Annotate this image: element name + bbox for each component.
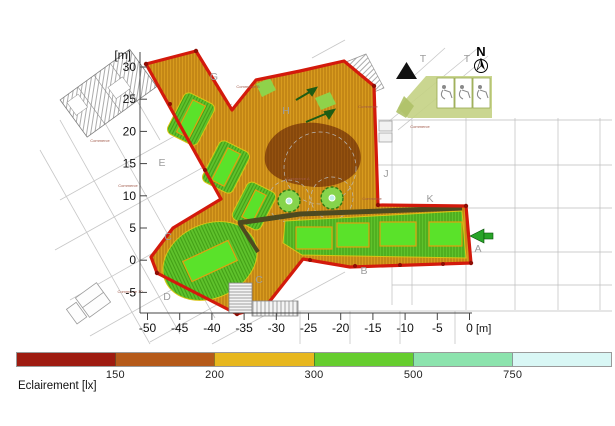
parking-stalls <box>437 78 490 108</box>
illuminance-legend-bar <box>16 352 612 367</box>
commerce-annotation: Commerce <box>410 124 430 129</box>
legend-band <box>413 353 512 366</box>
y-tick-label: 5 <box>129 221 136 235</box>
north-arrow: N <box>475 44 488 73</box>
y-tick-label: 20 <box>123 124 137 138</box>
grid-letter: A <box>474 243 481 255</box>
x-tick-label: -50 <box>139 321 157 335</box>
grid-letter: C <box>255 274 263 286</box>
y-tick-label: -5 <box>125 285 136 299</box>
plan-svg: N GHECCDBAKJTT CommerceCommerceCommerce … <box>0 0 615 348</box>
grid-letter: T <box>420 53 427 65</box>
y-tick-label: 15 <box>123 157 137 171</box>
x-tick-label: -20 <box>332 321 350 335</box>
grid-letter: E <box>158 157 165 169</box>
x-tick-label: -15 <box>364 321 382 335</box>
legend-boundary-value: 750 <box>503 369 522 381</box>
grid-letter: K <box>426 193 433 205</box>
grid-letter: D <box>163 291 171 303</box>
grid-letter: B <box>360 265 367 277</box>
grid-letter: C <box>164 231 172 243</box>
x-tick-label: -10 <box>396 321 414 335</box>
y-tick-label: 10 <box>123 189 137 203</box>
y-tick-label: 0 <box>129 253 136 267</box>
legend-band <box>17 353 115 366</box>
commerce-annotation: Commerce B <box>236 84 260 89</box>
legend-boundary-value: 200 <box>205 369 224 381</box>
commerce-annotation: Commerce <box>90 138 110 143</box>
y-axis-unit: [m] <box>114 48 131 62</box>
north-label: N <box>476 44 485 59</box>
x-tick-label: -5 <box>432 321 443 335</box>
x-tick-label: -30 <box>268 321 286 335</box>
x-axis-ticks: -50-45-40-35-30-25-20-15-10-50 <box>139 313 473 335</box>
y-tick-label: 25 <box>123 92 137 106</box>
commerce-annotation: Commerce <box>362 196 382 201</box>
grid-letter: T <box>464 53 471 65</box>
exit-boxes <box>379 121 392 142</box>
legend-boundary-value: 300 <box>305 369 324 381</box>
landscape-parking-zone <box>396 76 492 118</box>
commerce-annotation: Commerce <box>358 104 378 109</box>
legend-boundary-value: 150 <box>106 369 125 381</box>
legend-boundary-value: 500 <box>404 369 423 381</box>
legend-band <box>214 353 313 366</box>
x-tick-label: 0 <box>466 321 473 335</box>
small-buildings <box>64 283 110 326</box>
existing-building-hatched <box>60 49 157 137</box>
x-tick-label: -45 <box>171 321 189 335</box>
grid-letter: J <box>383 168 388 180</box>
grid-letter: H <box>282 105 290 117</box>
grid-letter: G <box>210 71 218 83</box>
y-tick-label: 30 <box>123 60 137 74</box>
east-entrance-arrow <box>470 229 493 243</box>
legend-band <box>115 353 214 366</box>
triangle-marker <box>396 62 417 79</box>
legend-band <box>314 353 413 366</box>
legend-title: Eclairement [lx] <box>18 380 97 392</box>
illuminance-legend-labels: 150200300500750 <box>16 369 612 382</box>
commerce-annotation: Commerce <box>118 183 138 188</box>
site-plan: N GHECCDBAKJTT CommerceCommerceCommerce … <box>0 0 615 348</box>
x-tick-label: -35 <box>235 321 253 335</box>
commerce-annotation: Commerce A <box>286 176 309 181</box>
x-tick-label: -40 <box>203 321 221 335</box>
x-axis-unit: [m] <box>476 323 491 335</box>
x-tick-label: -25 <box>300 321 318 335</box>
legend-band <box>512 353 611 366</box>
